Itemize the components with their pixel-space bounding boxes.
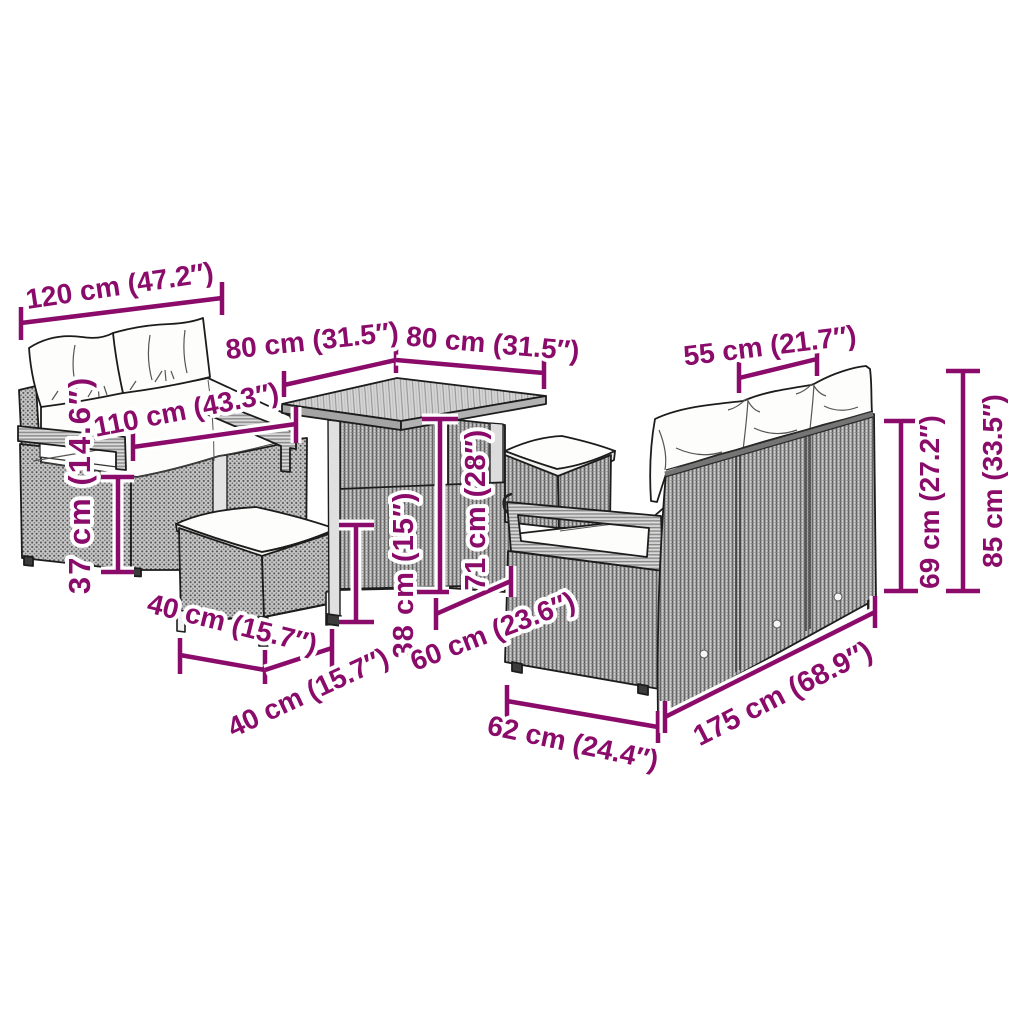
svg-text:38 cm (15″): 38 cm (15″): [388, 492, 420, 659]
svg-text:37 cm (14.6″): 37 cm (14.6″): [62, 376, 97, 594]
svg-text:69 cm (27.2″): 69 cm (27.2″): [914, 415, 945, 589]
svg-text:71 cm (28″): 71 cm (28″): [460, 429, 492, 590]
svg-text:85 cm (33.5″): 85 cm (33.5″): [977, 394, 1008, 568]
